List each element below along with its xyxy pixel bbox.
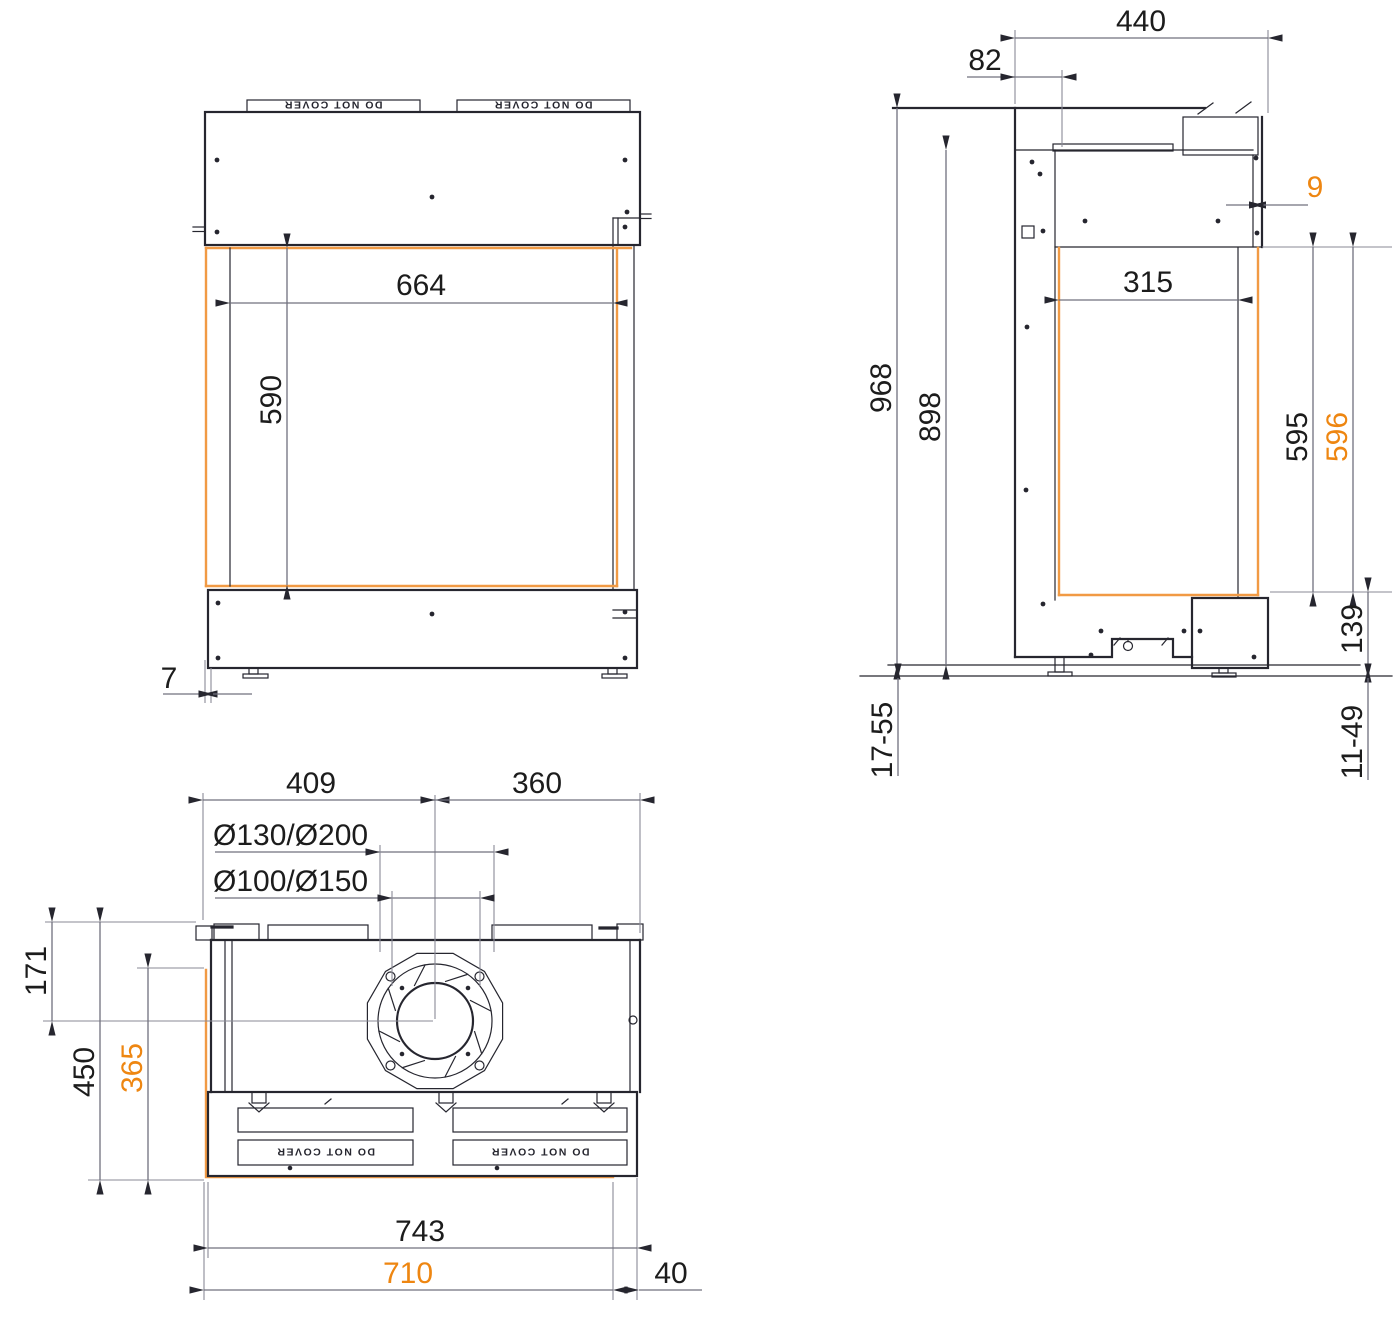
dim-floor-adjust-left-label: 17-55 — [866, 702, 899, 779]
front-hood-panel: DO NOT COVER DO NOT COVER — [193, 99, 651, 246]
front-top-panel — [208, 1092, 637, 1176]
dim-opening-width-label: 664 — [396, 269, 446, 302]
dim-flue-offset-back-label: 171 — [20, 946, 53, 996]
side-dimensions: 440 82 9 968 898 315 595 596 139 17-55 — [865, 5, 1392, 780]
top-dimensions: 409 360 Ø130/Ø200 Ø100/Ø150 171 450 365 — [20, 767, 702, 1300]
dim-flue-offset-left-label: 409 — [286, 767, 336, 800]
warning-plate-label: DO NOT COVER — [276, 1146, 375, 1158]
fixing-screw — [1124, 642, 1133, 651]
front-view: DO NOT COVER DO NOT COVER — [161, 99, 651, 704]
collar-screw-hole — [386, 1061, 395, 1070]
rear-corner-bracket — [617, 924, 643, 940]
dim-front-gap-label: 7 — [161, 662, 178, 695]
hood-outline — [205, 112, 640, 245]
dim-side-glass-height-label: 595 — [1281, 412, 1314, 462]
warning-plate-label: DO NOT COVER — [490, 1146, 589, 1158]
warning-plate-label: DO NOT COVER — [283, 99, 382, 111]
top-view: DO NOT COVER DO NOT COVER 409 360 Ø130/Ø… — [20, 767, 702, 1300]
cable-clip — [1022, 226, 1034, 238]
front-dimensions: 664 590 7 — [161, 248, 613, 703]
dim-plinth-height-label: 139 — [1336, 604, 1369, 654]
dim-rear-panel-gap-label: 9 — [1307, 171, 1324, 204]
adjustable-foot — [243, 674, 268, 678]
base-outline — [208, 590, 637, 668]
dim-height-body-label: 898 — [914, 392, 947, 442]
top-louver-section: DO NOT COVER DO NOT COVER — [208, 1092, 637, 1176]
front-base-panel — [208, 590, 637, 678]
dim-flue-offset-right-label: 360 — [512, 767, 562, 800]
dim-side-glass-depth-label: 365 — [116, 1043, 149, 1093]
dim-depth-total-label: 450 — [68, 1047, 101, 1097]
rear-tab — [268, 925, 368, 940]
drawing-canvas: DO NOT COVER DO NOT COVER — [0, 0, 1400, 1333]
dim-side-gap-label: 40 — [654, 1257, 687, 1290]
side-floor-lines — [860, 665, 1392, 676]
vent-slot — [238, 1108, 413, 1132]
dim-height-overall-label: 968 — [865, 363, 898, 413]
side-view: 440 82 9 968 898 315 595 596 139 17-55 — [860, 5, 1392, 780]
top-body — [196, 924, 643, 1092]
clip — [252, 1092, 266, 1103]
dim-side-glass-depth-label: 315 — [1123, 266, 1173, 299]
rear-corner-bracket — [196, 926, 212, 940]
warning-plate-label: DO NOT COVER — [493, 99, 592, 111]
adjustable-foot — [602, 674, 627, 678]
rear-tab — [492, 925, 592, 940]
dim-opening-height-label: 590 — [255, 375, 288, 425]
collar-screw-hole — [386, 972, 395, 981]
dim-floor-adjust-right-label: 11-49 — [1336, 705, 1369, 780]
vent-slot — [453, 1108, 627, 1132]
dim-flue-inner-label: Ø100/Ø150 — [213, 865, 368, 898]
dim-flue-outer-label: Ø130/Ø200 — [213, 819, 368, 852]
drawing-page: DO NOT COVER DO NOT COVER — [0, 0, 1400, 1333]
base-box — [1192, 598, 1268, 668]
side-body — [893, 102, 1268, 677]
dim-width-glass-label: 710 — [383, 1257, 433, 1290]
collar-screw-hole — [475, 1061, 484, 1070]
top-bracket — [1183, 117, 1258, 155]
dim-rear-offset-label: 82 — [968, 44, 1001, 77]
dim-depth-overall-label: 440 — [1116, 5, 1166, 38]
clip — [439, 1092, 453, 1103]
clip — [597, 1092, 611, 1103]
dim-width-front-panel-label: 743 — [395, 1215, 445, 1248]
dim-side-glass-height-outer-label: 596 — [1321, 412, 1354, 462]
